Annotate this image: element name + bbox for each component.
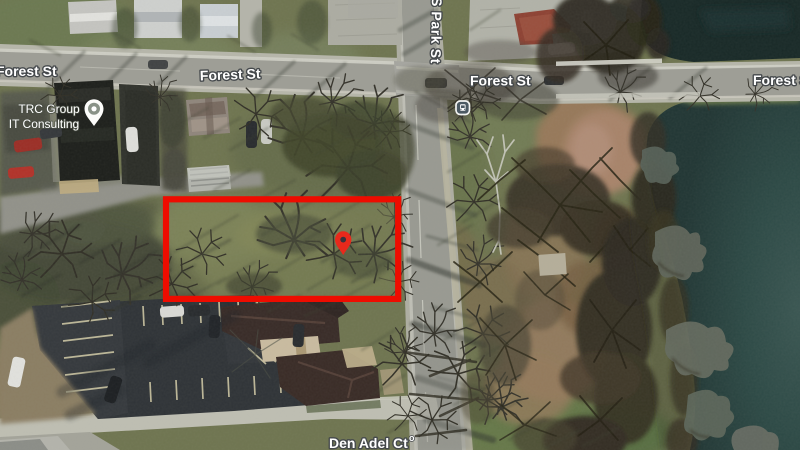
svg-text:o: o <box>409 433 415 443</box>
svg-text:TRC Group: TRC Group <box>18 102 80 116</box>
svg-text:S Park St: S Park St <box>428 0 445 64</box>
svg-text:Forest St: Forest St <box>200 65 262 83</box>
svg-text:Den Adel Ct: Den Adel Ct <box>329 435 408 450</box>
svg-text:Forest St: Forest St <box>0 63 57 79</box>
svg-text:IT Consulting: IT Consulting <box>9 117 79 131</box>
svg-text:Forest St: Forest St <box>470 73 531 89</box>
svg-text:Forest St: Forest St <box>753 72 800 88</box>
